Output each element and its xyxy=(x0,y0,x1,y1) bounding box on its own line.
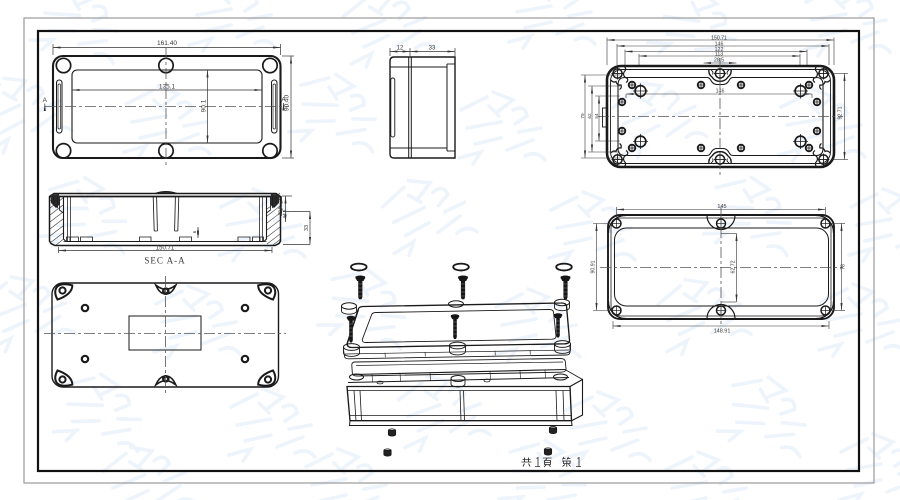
svg-text:28.5: 28.5 xyxy=(714,58,724,64)
svg-text:78: 78 xyxy=(841,264,847,270)
svg-text:SEC A-A: SEC A-A xyxy=(144,256,185,266)
svg-text:33: 33 xyxy=(304,225,310,231)
svg-text:A: A xyxy=(281,97,286,104)
svg-text:79: 79 xyxy=(580,113,585,119)
svg-text:90.91: 90.91 xyxy=(591,260,597,273)
svg-text:92.71: 92.71 xyxy=(838,106,844,119)
svg-text:62.72: 62.72 xyxy=(731,260,737,273)
svg-text:150.71: 150.71 xyxy=(156,246,175,252)
svg-text:54: 54 xyxy=(594,113,599,119)
svg-text:12: 12 xyxy=(397,46,404,52)
svg-text:135.1: 135.1 xyxy=(159,84,176,91)
svg-text:A: A xyxy=(43,97,48,104)
svg-text:148.91: 148.91 xyxy=(714,329,731,335)
svg-text:6: 6 xyxy=(192,230,197,233)
svg-text:33: 33 xyxy=(429,46,436,52)
svg-text:145: 145 xyxy=(717,204,726,210)
svg-text:161.40: 161.40 xyxy=(157,40,177,47)
svg-text:62: 62 xyxy=(587,113,592,119)
svg-text:146: 146 xyxy=(716,89,725,95)
svg-text:90.1: 90.1 xyxy=(201,99,208,112)
svg-text:44.5: 44.5 xyxy=(282,209,287,218)
